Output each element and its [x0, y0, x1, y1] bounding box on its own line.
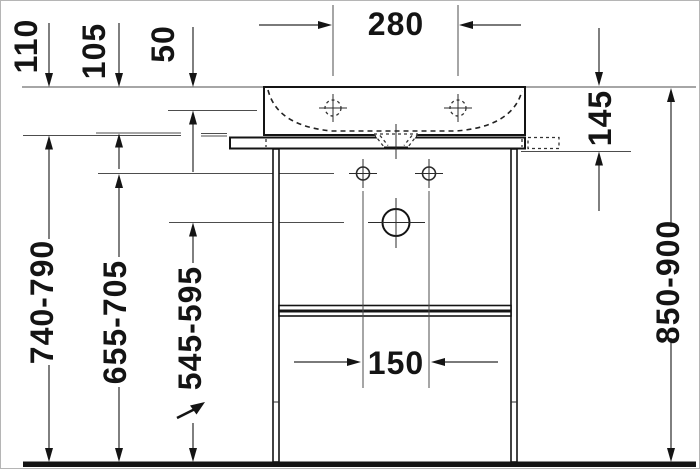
console-leg-left	[273, 149, 279, 462]
metal-console	[230, 138, 559, 463]
fixing-hole-left-crosshair	[349, 159, 377, 188]
dim-label-545-595: 545-595	[172, 266, 208, 390]
arrowhead	[595, 72, 603, 86]
floor-line	[23, 462, 696, 468]
dim-label-105: 105	[76, 23, 112, 79]
height-adjustable-arrow-icon	[177, 402, 205, 418]
arrowhead	[45, 73, 53, 87]
siphon-outlet-crosshair	[368, 198, 425, 248]
fixing-hole-right	[415, 159, 443, 188]
arrowhead	[318, 21, 332, 29]
dim-label-150: 150	[368, 345, 424, 381]
arrowhead	[431, 358, 445, 366]
arrowhead	[115, 448, 123, 462]
arrowhead	[45, 448, 53, 462]
dim-label-110: 110	[8, 19, 44, 74]
arrowhead	[189, 111, 197, 125]
arrowhead	[347, 358, 361, 366]
console-leg-right	[511, 149, 517, 462]
dimension-labels: 110 105 50 280 145 740-790 655-705 545-5…	[8, 6, 686, 390]
arrowhead	[189, 448, 197, 462]
dim-label-655-705: 655-705	[97, 260, 133, 384]
siphon-outlet-hole	[368, 198, 425, 248]
dim-label-740-790: 740-790	[24, 240, 60, 364]
dim-label-850-900: 850-900	[650, 220, 686, 344]
arrowhead	[595, 152, 603, 166]
arrowhead	[189, 223, 197, 237]
dimension-drawing: 110 105 50 280 145 740-790 655-705 545-5…	[1, 1, 700, 470]
dim-label-50: 50	[145, 25, 181, 63]
ref-line-stub	[201, 134, 227, 137]
dim-label-280: 280	[368, 6, 424, 42]
arrowhead	[45, 136, 53, 150]
basin-outline	[264, 87, 525, 135]
arrowhead	[189, 73, 197, 87]
fixing-hole-right-crosshair	[415, 159, 443, 188]
arrowhead	[667, 88, 675, 102]
dim-label-145: 145	[582, 90, 618, 146]
arrowhead	[115, 73, 123, 87]
fixing-hole-left	[349, 159, 377, 188]
arrowhead	[115, 174, 123, 188]
arrowhead	[459, 21, 473, 29]
console-board-dashed-extension	[528, 138, 559, 149]
technical-drawing-canvas: 110 105 50 280 145 740-790 655-705 545-5…	[0, 0, 700, 469]
arrowhead	[667, 448, 675, 462]
